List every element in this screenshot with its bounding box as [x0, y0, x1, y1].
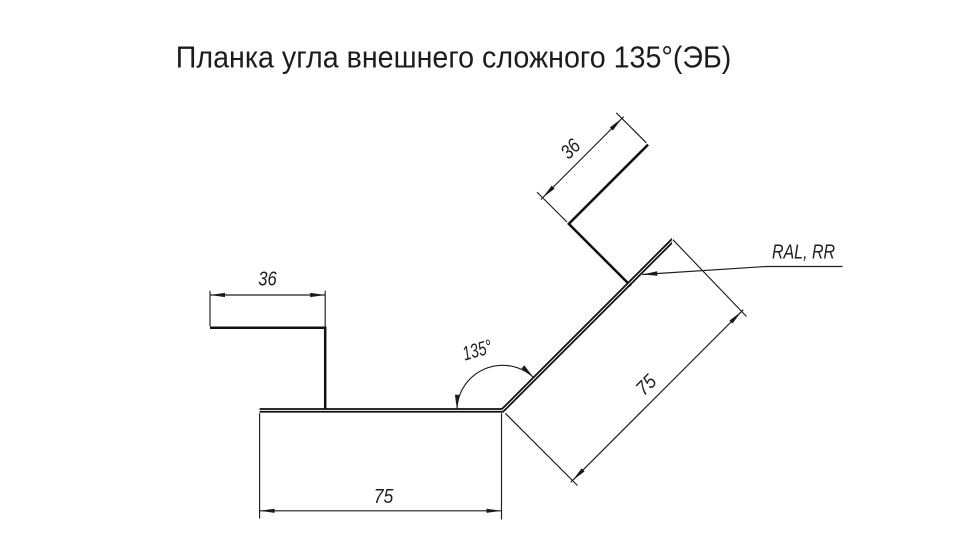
svg-text:Планка угла внешнего сложного: Планка угла внешнего сложного 135°(ЭБ) — [176, 40, 732, 75]
svg-text:75: 75 — [374, 485, 394, 507]
svg-text:36: 36 — [258, 267, 277, 290]
svg-text:RAL, RR: RAL, RR — [772, 241, 835, 263]
